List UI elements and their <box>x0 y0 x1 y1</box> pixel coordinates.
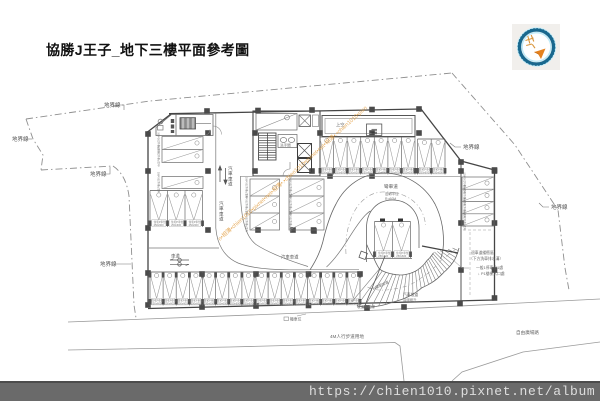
svg-text:250x600: 250x600 <box>243 302 254 306</box>
svg-text:汽: 汽 <box>219 200 224 206</box>
svg-text:250x600: 250x600 <box>378 254 389 258</box>
svg-text:250x600: 250x600 <box>322 302 333 306</box>
svg-text:250x600: 250x600 <box>396 254 407 258</box>
svg-text:250x600: 250x600 <box>189 223 200 227</box>
svg-text:迴轉半徑: 迴轉半徑 <box>385 191 399 196</box>
svg-text:汽車坡道: 汽車坡道 <box>403 292 418 297</box>
svg-text:道: 道 <box>219 216 224 223</box>
svg-text:住宅P車位250x600: 住宅P車位250x600 <box>157 171 161 193</box>
svg-text:250x600: 250x600 <box>335 171 346 175</box>
svg-text:汽: 汽 <box>228 165 233 171</box>
svg-text:地界線: 地界線 <box>551 203 568 211</box>
svg-text:彎車道: 彎車道 <box>384 183 398 190</box>
svg-text:自由廣場路: 自由廣場路 <box>516 329 539 336</box>
svg-text:250x600: 250x600 <box>403 171 414 175</box>
svg-text:汽車車道: 汽車車道 <box>281 254 299 261</box>
svg-text:（下方洗車排水溝）: （下方洗車排水溝） <box>469 256 503 261</box>
svg-text:250x600: 250x600 <box>419 171 430 175</box>
svg-text:250x600: 250x600 <box>322 171 333 175</box>
svg-text:R=60M: R=60M <box>385 197 396 201</box>
svg-text:住宅P車位250x600: 住宅P車位250x600 <box>463 209 467 231</box>
svg-text:250x600: 250x600 <box>309 302 320 306</box>
svg-text:↓ P1樓梯入口處: ↓ P1樓梯入口處 <box>478 271 505 276</box>
svg-text:250x600: 250x600 <box>230 302 241 306</box>
svg-text:洗手間: 洗手間 <box>280 143 291 148</box>
svg-text:250x600: 250x600 <box>151 302 162 306</box>
svg-text:住宅P車位250x600: 住宅P車位250x600 <box>289 210 293 232</box>
svg-text:250x600: 250x600 <box>154 223 165 227</box>
svg-text:250x600: 250x600 <box>270 302 281 306</box>
svg-text:250x600: 250x600 <box>349 171 360 175</box>
svg-text:地界線: 地界線 <box>463 143 480 151</box>
svg-text:250x600: 250x600 <box>335 302 346 306</box>
svg-text:250x600: 250x600 <box>296 302 307 306</box>
svg-text:一般1停車位1處: 一般1停車位1處 <box>476 265 503 270</box>
svg-text:坡道起點線: 坡道起點線 <box>357 304 375 309</box>
svg-text:住宅P車位250x600: 住宅P車位250x600 <box>157 145 161 167</box>
svg-text:250x600: 250x600 <box>362 171 373 175</box>
svg-text:機車位: 機車位 <box>290 317 302 322</box>
svg-text:4M人行步道用地: 4M人行步道用地 <box>330 333 364 340</box>
svg-text:250x600: 250x600 <box>217 302 228 306</box>
svg-text:曲線緩升: 曲線緩升 <box>403 297 417 302</box>
svg-text:道: 道 <box>228 181 233 188</box>
svg-text:250x600: 250x600 <box>256 302 267 306</box>
svg-text:250x600: 250x600 <box>433 171 444 175</box>
svg-text:250x600: 250x600 <box>204 302 215 306</box>
svg-text:250x600: 250x600 <box>178 302 189 306</box>
svg-text:250x600: 250x600 <box>191 302 202 306</box>
svg-text:250x600: 250x600 <box>283 302 294 306</box>
svg-text:迴車道緩衝區: 迴車道緩衝區 <box>471 250 494 255</box>
svg-text:250x600: 250x600 <box>171 223 182 227</box>
svg-text:250x600: 250x600 <box>165 302 176 306</box>
